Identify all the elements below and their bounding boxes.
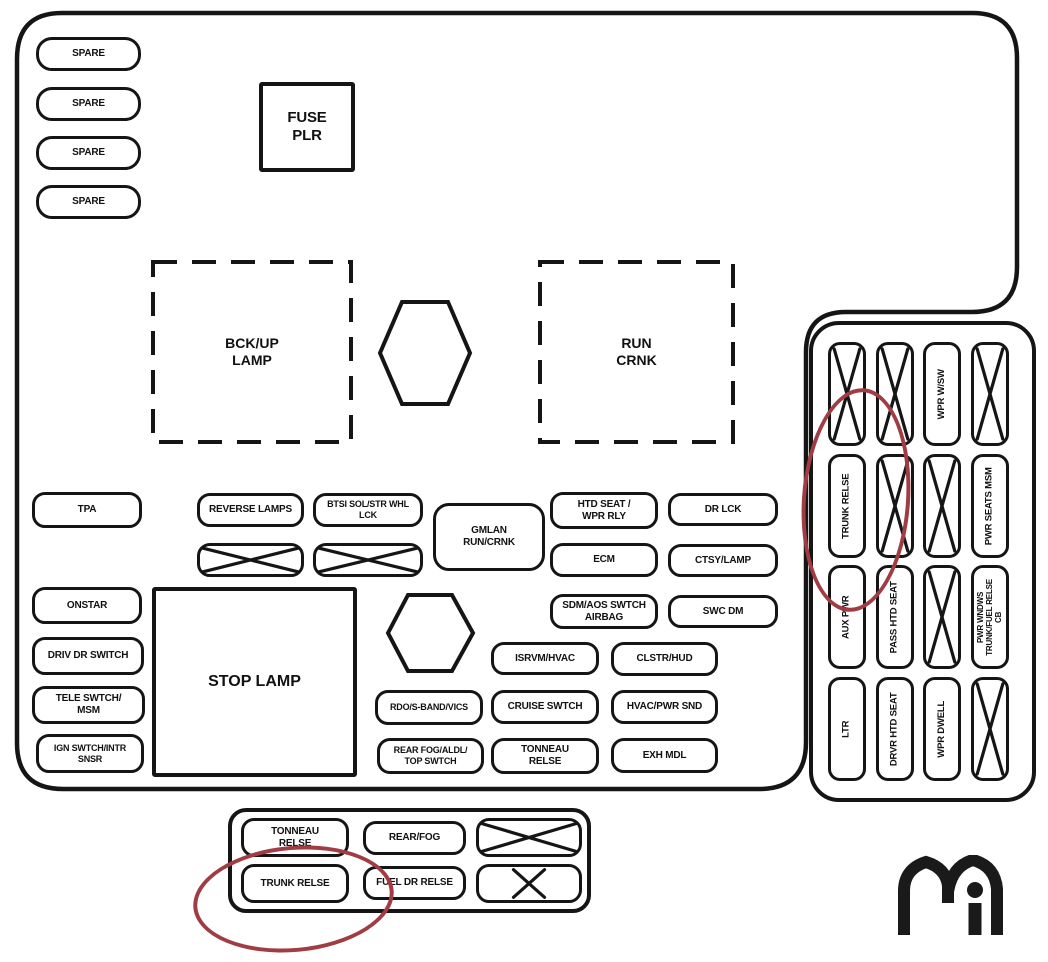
side-fuse-wpr-wsw: WPR W/SW (923, 342, 961, 446)
x-mark-icon (316, 546, 420, 574)
x-mark-icon (926, 457, 958, 555)
side-fuse-label: PWR WNDWS TRUNK/FUEL RELSE CB (977, 579, 1004, 656)
fuse-dr-lck: DR LCK (668, 493, 778, 526)
side-fuse-label: PWR SEATS MSM (985, 467, 996, 545)
fuse-blank-1 (197, 543, 304, 577)
fuse-puller-box: FUSE PLR (259, 82, 355, 172)
fuse-blank-2 (313, 543, 423, 577)
fuse-ecm: ECM (550, 543, 658, 577)
fuse-sdm-aos-swtch-airbag: SDM/AOS SWTCH AIRBAG (550, 594, 658, 629)
fuse-tpa: TPA (32, 492, 142, 528)
x-mark-icon (479, 821, 579, 854)
fuse-tele-swtch-msm: TELE SWTCH/ MSM (32, 686, 145, 724)
hexagon-connector-bottom (388, 595, 473, 671)
fuse-ctsy-lamp: CTSY/LAMP (668, 544, 778, 577)
fuse-spare-2: SPARE (36, 87, 141, 121)
fuse-tonneau-relse-mid: TONNEAU RELSE (491, 738, 599, 774)
side-fuse-label: LTR (842, 720, 853, 737)
side-fuse-label: WPR W/SW (937, 369, 948, 419)
fuse-btsi-sol-str-whl-lck: BTSI SOL/STR WHL LCK (313, 493, 423, 527)
fuse-driv-dr-switch: DRIV DR SWITCH (32, 637, 144, 675)
fuse-hvac-pwr-snd: HVAC/PWR SND (611, 690, 718, 724)
fuse-spare-1: SPARE (36, 37, 141, 71)
x-mark-icon (926, 568, 958, 666)
x-mark-icon (200, 546, 301, 574)
fuse-exh-mdl: EXH MDL (611, 738, 718, 773)
fuse-htd-seat-wpr-rly: HTD SEAT / WPR RLY (550, 492, 658, 529)
fuse-blank-bottom-1 (476, 818, 582, 857)
x-mark-icon (974, 345, 1006, 443)
side-fuse-label: DRVR HTD SEAT (890, 692, 901, 766)
side-fuse-label: WPR DWELL (937, 701, 948, 758)
side-fuse-wpr-dwell: WPR DWELL (923, 677, 961, 781)
logo-m-left-arch (904, 862, 948, 935)
fuse-spare-3: SPARE (36, 136, 141, 170)
bckup-lamp-label: BCK/UP LAMP (153, 262, 351, 442)
run-crnk-label: RUN CRNK (540, 262, 733, 442)
fuse-rear-fog-aldl-top-swtch: REAR FOG/ALDL/ TOP SWTCH (377, 738, 484, 774)
fuse-ign-swtch-intr-snsr: IGN SWTCH/INTR SNSR (36, 734, 144, 773)
modified-life-logo (896, 855, 1016, 935)
fuse-gmlan-run-crnk: GMLAN RUN/CRNK (433, 503, 545, 571)
side-fuse-blank-r2c3 (923, 454, 961, 558)
stop-lamp-box: STOP LAMP (152, 587, 357, 777)
fuse-cruise-swtch: CRUISE SWTCH (491, 690, 599, 724)
logo-i-dot (967, 882, 983, 898)
x-mark-icon (479, 867, 579, 900)
fuse-blank-bottom-2 (476, 864, 582, 903)
side-fuse-pwr-seats-msm: PWR SEATS MSM (971, 454, 1009, 558)
side-fuse-blank-r3c3 (923, 565, 961, 669)
fuse-rdo-s-band-vics: RDO/S-BAND/VICS (375, 690, 483, 725)
fuse-spare-4: SPARE (36, 185, 141, 219)
side-fuse-label: PASS HTD SEAT (890, 581, 901, 653)
fuse-isrvm-hvac: ISRVM/HVAC (491, 642, 599, 675)
side-fuse-drvr-htd-seat: DRVR HTD SEAT (876, 677, 914, 781)
fuse-onstar: ONSTAR (32, 587, 142, 624)
side-fuse-blank-r4c4 (971, 677, 1009, 781)
side-fuse-pwr-wndws-trunk-fuel-relse-cb: PWR WNDWS TRUNK/FUEL RELSE CB (971, 565, 1009, 669)
fuse-rear-fog: REAR/FOG (363, 821, 466, 855)
side-fuse-ltr: LTR (828, 677, 866, 781)
hexagon-connector-top (380, 302, 470, 404)
side-fuse-blank-r1c4 (971, 342, 1009, 446)
fuse-reverse-lamps: REVERSE LAMPS (197, 493, 304, 527)
logo-i-stem (969, 903, 982, 935)
fuse-clstr-hud: CLSTR/HUD (611, 642, 718, 676)
fuse-swc-dm: SWC DM (668, 595, 778, 628)
x-mark-icon (974, 680, 1006, 778)
fuse-box-diagram: BCK/UP LAMP RUN CRNK SPARE SPARE SPARE S… (0, 0, 1048, 962)
